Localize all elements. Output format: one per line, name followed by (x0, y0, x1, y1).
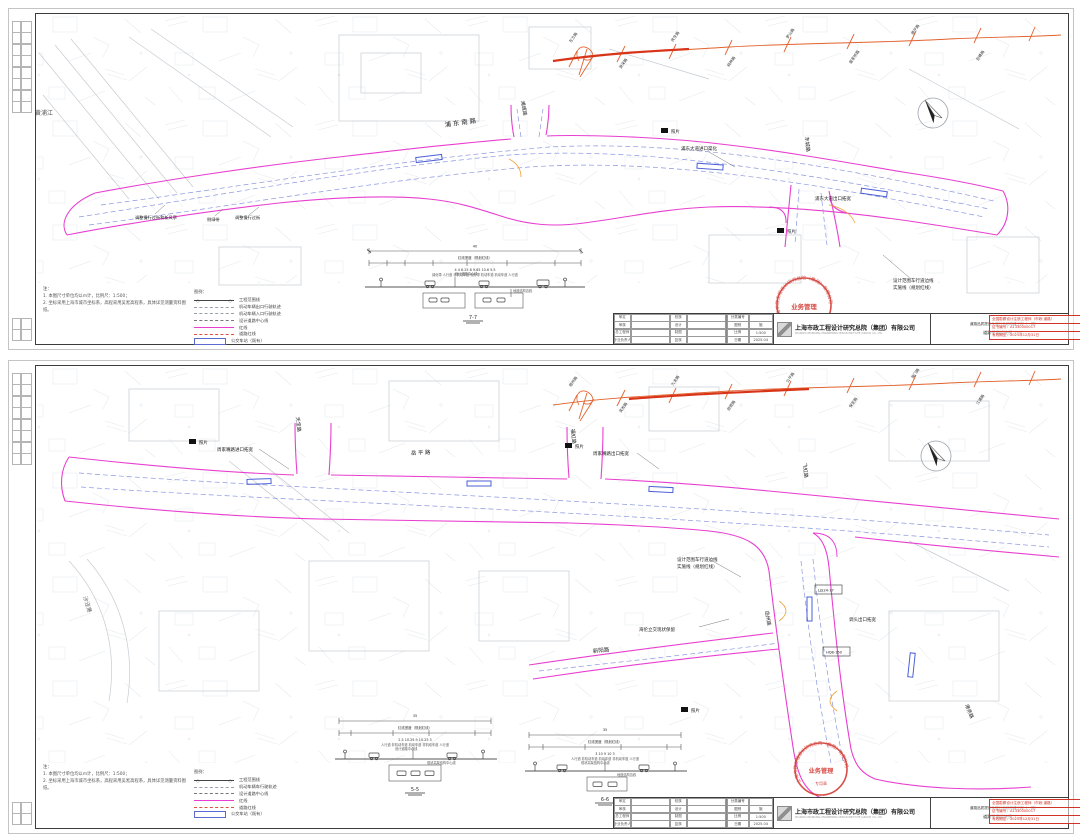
section-total-label: 红线宽度（规划红线） (588, 739, 622, 744)
sheet-1: 东方路 源深路 民生路 桃林路 罗山路 居家桥路 德平路 巨峰路 上海市政工程设… (8, 8, 1074, 350)
legend-symbol-dash (194, 313, 234, 314)
annotation: 浦东大道进口渠化 (681, 145, 717, 152)
photo-label: 照片 (787, 228, 796, 235)
company-logo (777, 806, 792, 821)
notes-title: 注： (43, 765, 193, 772)
section-dims: 2.5 10.25 9 10.25 3 (398, 738, 431, 742)
camera-icon (777, 228, 784, 233)
digital-signature-box: 全国勘察设计注册工程师（市政·道路） 证书编号：A1330000017 有效期至… (989, 315, 1080, 340)
signature-line: 证书编号：A1330000017 (990, 808, 1080, 816)
camera-icon (189, 439, 196, 444)
signoff-strip (12, 21, 32, 113)
notes-block: 注： 1. 本图尺寸单位均以m计，比例尺：1:500； 2. 坐标采用上海市城市… (43, 287, 193, 315)
legend-label: 机动车辆出口行驶轨迹 (239, 304, 281, 310)
section-total: 35 (603, 728, 608, 732)
sheet-2: 梧州路 吴淞路 九龙路 旅顺路 公平路 保定路 海门路 江浦路 上海市政工程设计… (8, 360, 1074, 834)
legend-symbol-dash (194, 787, 234, 788)
stamp-center-text: 业务管理 (791, 302, 817, 311)
annotation: 周家嘴路出口拓宽 (593, 450, 629, 457)
note-line: 1. 本图尺寸单位均以m计，比例尺：1:500； (43, 294, 193, 301)
annotation: 设计范围车行道边线 (893, 277, 934, 284)
meta-grid: 分类编号 图别施 比例1:500 日期2025.04 (726, 798, 773, 828)
legend-label: 设计道路中心线 (239, 318, 268, 324)
section-note: 现状高架结构中心线 (427, 760, 456, 765)
annotation: 实施线（规划红线） (893, 284, 934, 291)
annotation: 设计范围车行道边线 (677, 556, 718, 563)
section-total-label: 红线宽度（规划红线） (458, 255, 492, 260)
photo-label: 照片 (671, 128, 680, 135)
archive-strip (12, 802, 32, 825)
legend-symbol-centerline (194, 320, 234, 321)
signoff-strip (12, 373, 32, 465)
annotation: 浦东大道出口拓宽 (815, 195, 851, 202)
legend-label: 红线 (239, 325, 247, 331)
signature-line: 有效期至：2025年12月31日 (990, 816, 1080, 823)
note-line: 2. 坐标采用上海市城市坐标系，高程采用吴淞高程系，具体详见测量资料图纸。 (43, 301, 193, 315)
legend-label: 设计道路中心线 (239, 791, 268, 797)
legend-symbol-bus-stop (194, 338, 226, 345)
note-line: 1. 本图尺寸单位均以m计，比例尺：1:500； (43, 772, 193, 779)
notes-title: 注： (43, 287, 193, 294)
legend-label: 道路红线 (239, 331, 256, 337)
annotation: 实施线（规划红线） (677, 563, 718, 570)
legend-label: 工程范围线 (239, 777, 260, 783)
callout-label: LJS24-17 (818, 589, 834, 593)
legend-symbol-centerline (194, 793, 234, 794)
cad-background-noise (37, 15, 1065, 283)
camera-icon (661, 128, 668, 133)
annotation: 周家嘴路进口拓宽 (217, 446, 253, 453)
photo-label: 照片 (199, 439, 208, 446)
signature-grid: 审定校核 审核设计 总工程师制图 专业负责人复核 (614, 314, 726, 344)
signature-line: 证书编号：A1330000017 (990, 324, 1080, 332)
section-note: 设计道路中心线 (455, 271, 478, 276)
legend-label: 公交车站（既有） (231, 338, 265, 344)
callout-label: HQ8-150 (826, 651, 843, 655)
sign-label: 复核 (670, 820, 688, 828)
section-title: 5-5 (411, 787, 419, 793)
legend-label: 道路红线 (239, 805, 256, 811)
note-line: 2. 坐标采用上海市城市坐标系，高程采用吴淞高程系，具体详见测量资料图纸。 (43, 779, 193, 793)
legend-symbol-dash (194, 307, 234, 308)
water-label: 黄浦江 (35, 109, 53, 117)
meta-key: 日期 (727, 336, 750, 344)
meta-key: 日期 (727, 820, 750, 828)
legend-block: 图例： 工程范围线 机动车辆出口行驶轨迹 机动车辆入口行驶轨迹 设计道路中心线 … (194, 289, 334, 345)
section-total: 40 (473, 245, 478, 249)
signature-grid: 审定校核 审核设计 总工程师制图 专业负责人复核 (614, 798, 726, 828)
annotation: 侧绿带 (207, 216, 220, 223)
section-title: 6-6 (601, 797, 609, 803)
legend-title: 图例： (194, 769, 334, 775)
section-total-label: 红线宽度（规划红线） (398, 725, 432, 730)
annotation: 调整慢行过街 (235, 214, 260, 221)
stamp-center-text: 业务管理 (809, 767, 835, 775)
section-note: 设计道路中心线 (395, 746, 418, 751)
legend-title: 图例： (194, 289, 334, 295)
section-note: 现状高架结构中心线 (581, 760, 610, 765)
legend-label: 机动车辆入口行驶轨迹 (239, 311, 281, 317)
company-cell: 上海市政工程设计研究总院（集团）有限公司 SHANGHAI MUNICIPAL … (773, 314, 930, 344)
camera-icon (681, 707, 688, 712)
section-note: 地道结构边线 (617, 772, 637, 777)
legend-block: 图例： 工程范围线 机动车辆车行驶轨迹 设计道路中心线 红线 道路红线 公交车站… (194, 769, 334, 818)
camera-icon (565, 443, 572, 448)
photo-label: 照片 (575, 443, 584, 450)
legend-symbol-scope (194, 300, 234, 301)
legend-symbol-redline (194, 800, 234, 801)
signature-line: 全国勘察设计注册工程师（市政·道路） (990, 800, 1080, 808)
company-cell: 上海市政工程设计研究总院（集团）有限公司 SHANGHAI MUNICIPAL … (773, 798, 930, 828)
company-name: 上海市政工程设计研究总院（集团）有限公司 (795, 323, 915, 332)
digital-signature-box: 全国勘察设计注册工程师（市政·道路） 证书编号：A1330000017 有效期至… (989, 799, 1080, 824)
sheet-2-plan: 梧州路 吴淞路 九龙路 旅顺路 公平路 保定路 海门路 江浦路 上海市政工程设计… (9, 361, 1073, 833)
sign-label: 专业负责人 (614, 820, 632, 828)
drawing-viewer: 东方路 源深路 民生路 桃林路 罗山路 居家桥路 德平路 巨峰路 上海市政工程设… (0, 0, 1080, 839)
section-title: 7-7 (469, 315, 477, 321)
signature-line: 全国勘察设计注册工程师（市政·道路） (990, 316, 1080, 324)
annotation: 调整慢行过街和新风亭 (135, 214, 177, 221)
company-name-en: SHANGHAI MUNICIPAL ENGINEERING DESIGN IN… (795, 332, 903, 335)
meta-grid: 分类编号 图别施 比例1:500 日期2025.04 (726, 314, 773, 344)
legend-symbol-road-redline (194, 334, 234, 335)
company-name: 上海市政工程设计研究总院（集团）有限公司 (795, 807, 915, 816)
legend-label: 机动车辆车行驶轨迹 (239, 784, 277, 790)
section-dims: 3 10 9 10 3 (595, 752, 614, 756)
photo-label: 照片 (691, 707, 700, 714)
legend-symbol-road-redline (194, 807, 234, 808)
annotation: 海伦立交现状保留 (639, 626, 675, 633)
legend-symbol-bus-stop (194, 811, 226, 818)
legend-symbol-redline (194, 327, 234, 328)
legend-symbol-scope (194, 780, 234, 781)
legend-label: 工程范围线 (239, 297, 260, 303)
company-name-en: SHANGHAI MUNICIPAL ENGINEERING DESIGN IN… (795, 816, 903, 819)
company-logo (777, 322, 792, 337)
annotation: 调头出口拓宽 (849, 616, 876, 623)
meta-value: 2025.04 (749, 336, 774, 344)
stamp-sub-text: 专用章 (815, 780, 827, 786)
legend-label: 公交车站（既有） (231, 811, 265, 817)
archive-strip (12, 318, 32, 341)
notes-block: 注： 1. 本图尺寸单位均以m计，比例尺：1:500； 2. 坐标采用上海市城市… (43, 765, 193, 793)
sign-label: 复核 (670, 336, 688, 344)
signature-line: 有效期至：2025年12月31日 (990, 332, 1080, 339)
section-note: 地道结构边线 (513, 288, 533, 293)
sign-label: 专业负责人 (614, 336, 632, 344)
section-total: 35 (413, 714, 418, 718)
meta-value: 2025.04 (749, 820, 774, 828)
cad-background-noise (37, 367, 1065, 763)
legend-label: 红线 (239, 798, 247, 804)
